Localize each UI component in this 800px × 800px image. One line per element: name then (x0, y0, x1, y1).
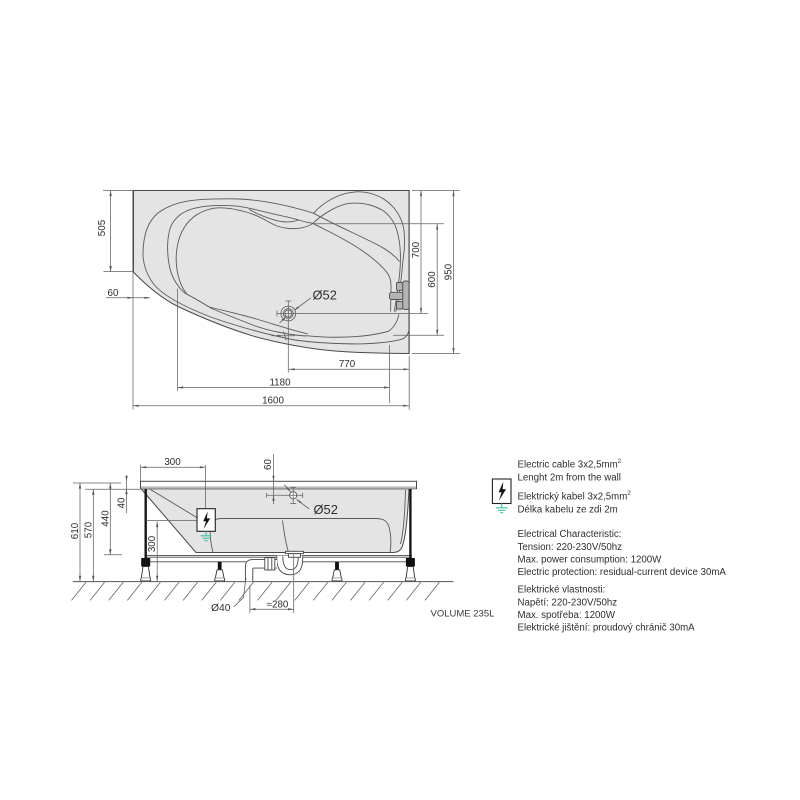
svg-text:60: 60 (263, 459, 274, 470)
svg-text:950: 950 (443, 263, 454, 280)
svg-text:Lenght 2m from the wall: Lenght 2m from the wall (518, 472, 621, 483)
svg-text:770: 770 (339, 359, 356, 370)
svg-text:Napětí: 220-230V/50hz: Napětí: 220-230V/50hz (518, 597, 618, 608)
svg-text:440: 440 (100, 510, 111, 527)
svg-text:Elektrický kabel 3x2,5mm2: Elektrický kabel 3x2,5mm2 (518, 491, 632, 503)
svg-text:300: 300 (164, 457, 181, 468)
svg-text:600: 600 (427, 271, 438, 288)
svg-text:Max. power consumption: 1200W: Max. power consumption: 1200W (518, 554, 663, 565)
svg-text:Ø40: Ø40 (211, 603, 231, 614)
svg-text:Ø52: Ø52 (313, 287, 337, 302)
svg-text:40: 40 (116, 497, 127, 508)
svg-text:1600: 1600 (262, 396, 284, 407)
svg-text:Elektrické vlastnosti:: Elektrické vlastnosti: (518, 585, 606, 596)
svg-text:Electrical Characteristic:: Electrical Characteristic: (518, 529, 622, 540)
svg-text:60: 60 (108, 288, 119, 299)
svg-text:Ø52: Ø52 (314, 502, 338, 517)
svg-text:Tension: 220-230V/50hz: Tension: 220-230V/50hz (518, 542, 623, 553)
svg-text:≈280: ≈280 (267, 599, 289, 610)
svg-text:Electric cable 3x2,5mm2: Electric cable 3x2,5mm2 (518, 459, 622, 471)
svg-text:VOLUME 235L: VOLUME 235L (431, 609, 495, 620)
svg-text:300: 300 (147, 535, 158, 552)
svg-text:610: 610 (70, 522, 81, 539)
svg-text:Max. spotřeba: 1200W: Max. spotřeba: 1200W (518, 610, 616, 621)
svg-text:Elektrické jištění: proudový c: Elektrické jištění: proudový chránič 30m… (518, 623, 696, 634)
svg-text:1180: 1180 (269, 377, 291, 388)
svg-text:Délka kabelu ze zdi 2m: Délka kabelu ze zdi 2m (518, 505, 618, 516)
svg-text:505: 505 (97, 219, 108, 236)
svg-text:Electric protection: residual-: Electric protection: residual-current de… (518, 567, 727, 578)
svg-text:570: 570 (83, 521, 94, 538)
svg-text:700: 700 (411, 241, 422, 258)
